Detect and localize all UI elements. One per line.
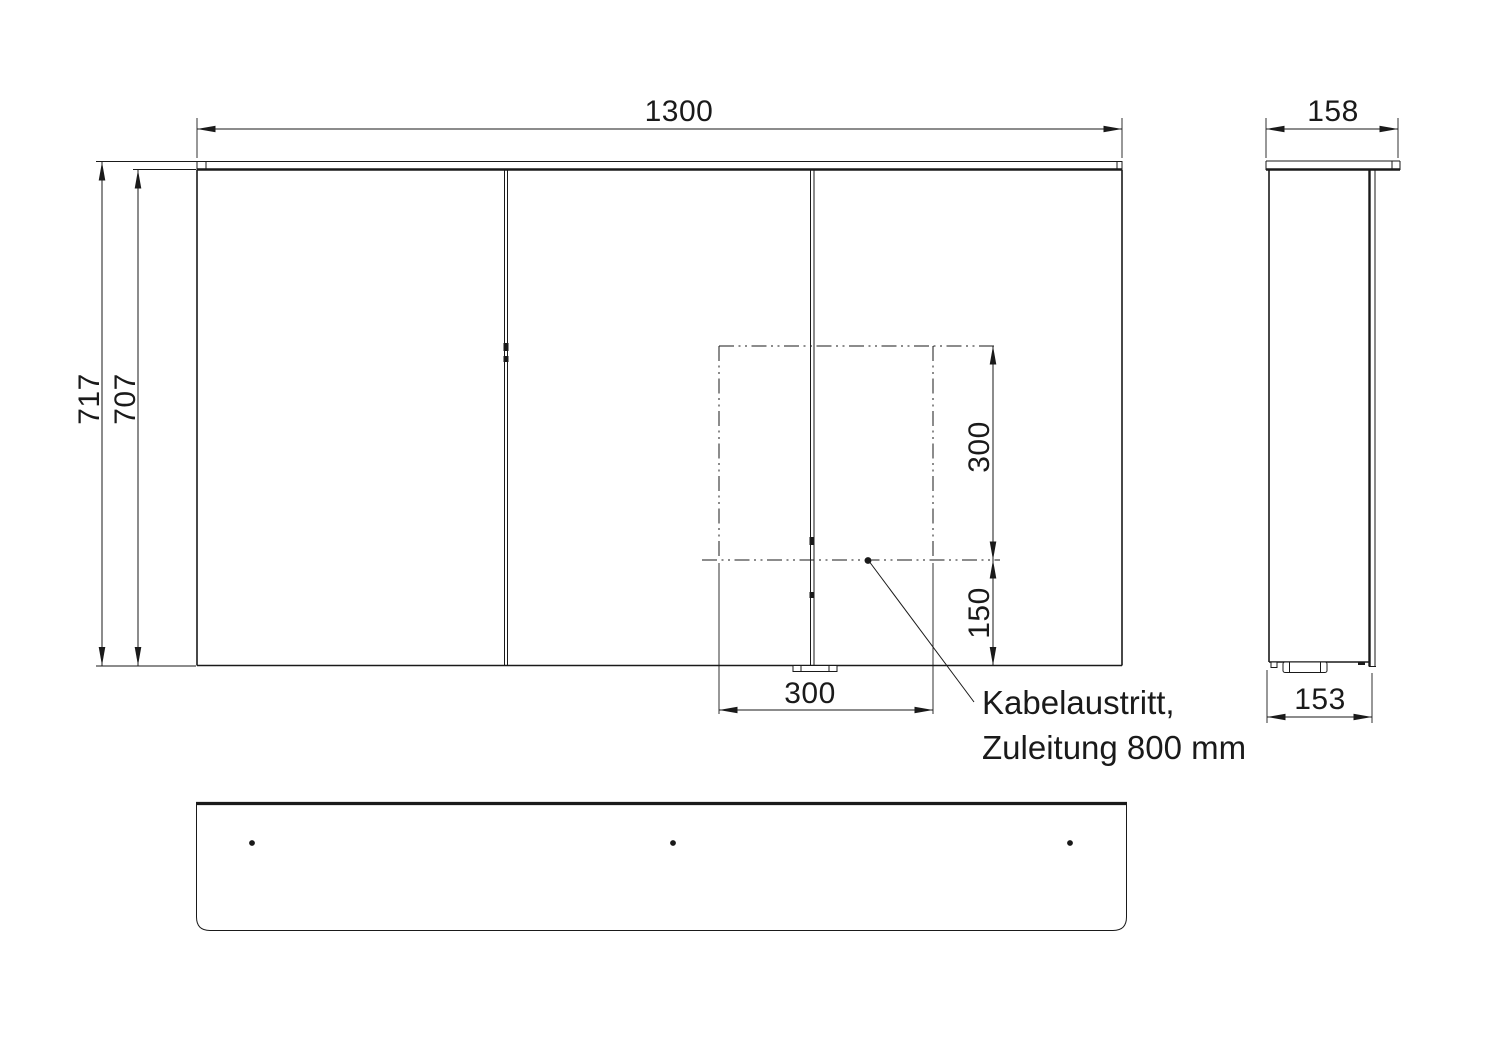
cable-annotation-line2: Zuleitung 800 mm — [982, 729, 1246, 766]
door-division-right — [810, 170, 815, 665]
dimension-front-width: 1300 — [197, 95, 1122, 158]
door-division-left — [504, 170, 509, 665]
bottom-view — [196, 804, 1127, 931]
dim-label-cutout-width: 300 — [784, 677, 836, 710]
dimension-cutout-offset: 150 — [963, 560, 996, 666]
leader-line — [870, 563, 974, 703]
dim-label-cutout-height: 300 — [963, 421, 996, 473]
dimension-door-height: 707 — [109, 170, 196, 666]
dimension-cutout-width: 300 — [719, 563, 933, 714]
dim-label-depth-bottom: 153 — [1294, 683, 1346, 716]
dim-label-door-height: 707 — [109, 373, 142, 425]
connection-field-centerlines — [702, 346, 1000, 560]
dim-label-depth-top: 158 — [1307, 95, 1359, 128]
cable-annotation: Kabelaustritt, Zuleitung 800 mm — [982, 684, 1246, 766]
dim-label-front-width: 1300 — [645, 95, 714, 128]
bottom-bracket-detail — [793, 666, 837, 672]
side-body — [1269, 170, 1370, 662]
cable-annotation-line1: Kabelaustritt, — [982, 684, 1175, 721]
dimension-depth-bottom: 153 — [1267, 670, 1372, 723]
side-view — [1266, 161, 1400, 673]
top-panel — [96, 161, 1122, 170]
side-top-panel — [1266, 161, 1400, 170]
dim-label-total-height: 717 — [73, 373, 106, 425]
bottom-view-outline — [197, 805, 1127, 931]
mounting-hole-dot — [1067, 840, 1073, 846]
mounting-hole-dot — [249, 840, 255, 846]
dimension-depth-top: 158 — [1266, 95, 1398, 158]
side-bottom-details — [1271, 662, 1365, 673]
dim-label-cutout-offset: 150 — [963, 587, 996, 639]
dimension-cutout-height: 300 — [963, 346, 996, 560]
technical-drawing-page: 1300 717 707 300 300 150 Kabelaustritt, … — [0, 0, 1500, 1056]
mirror-cabinet-dimension-drawing: 1300 717 707 300 300 150 Kabelaustritt, … — [0, 0, 1500, 1056]
side-mirror-door — [1369, 170, 1376, 667]
mounting-hole-dot — [670, 840, 676, 846]
